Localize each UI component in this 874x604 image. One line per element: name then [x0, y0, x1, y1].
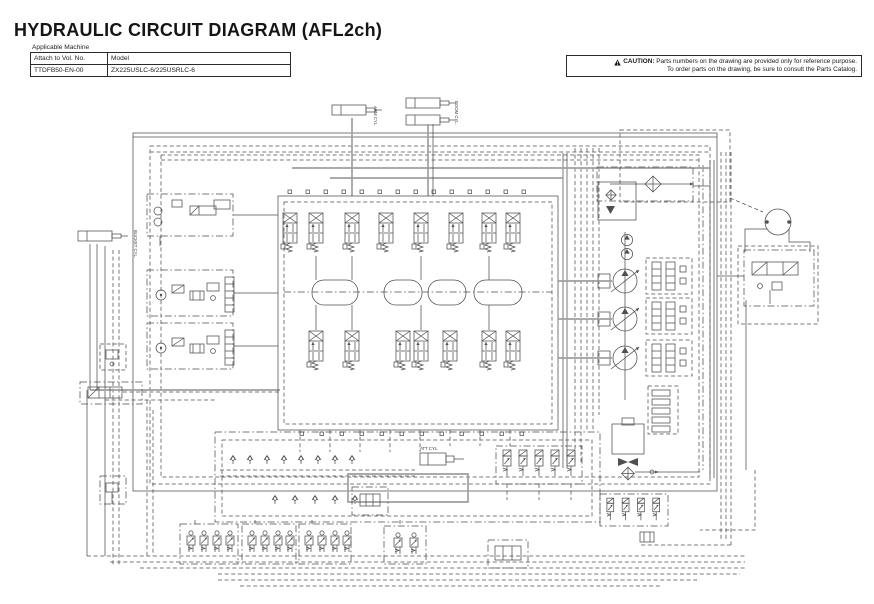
shuttle-valve-matrix: [215, 432, 600, 568]
pilot-solenoid-cluster: [600, 494, 668, 542]
boom-cylinder-label: BOOM CYL.: [454, 101, 459, 125]
page: HYDRAULIC CIRCUIT DIAGRAM (AFL2ch) Appli…: [0, 0, 874, 604]
pilot-pump: [621, 234, 632, 245]
suction-strainer-icon: [622, 467, 635, 480]
pump-regulators: [646, 258, 692, 434]
bucket-cylinder: BUCKET CYL.: [78, 230, 138, 390]
hydraulic-circuit-schematic: ARM CYL. BOOM CYL. BUCKET CYL.: [0, 0, 874, 604]
reservoir-unit: [612, 418, 700, 480]
attachment-cylinder-label: ATT CYL.: [420, 446, 438, 451]
oil-tank: [612, 424, 644, 454]
control-valve-bottom-ports: [300, 432, 524, 436]
travel-motor-valve-left: [147, 270, 278, 316]
attachment-cylinder: ATT CYL.: [420, 446, 464, 465]
gear-pump: [621, 248, 632, 259]
travel-motor-valve-right: [147, 323, 278, 369]
pilot-valve-cluster-4: [195, 520, 426, 564]
boom-cylinders: BOOM CYL.: [406, 98, 459, 196]
arm-cylinder: ARM CYL.: [332, 105, 382, 196]
pump-group: [558, 232, 639, 400]
return-filter-icon: [645, 176, 661, 192]
pilot-valve-cluster-3: [299, 524, 351, 564]
arm-cylinder-label: ARM CYL.: [373, 106, 378, 126]
pilot-valve-cluster-1: [180, 524, 238, 564]
pilot-valve-cluster-2: [242, 524, 296, 564]
control-valve-block: [278, 190, 558, 452]
solenoid-valve-manifold: [496, 446, 582, 500]
pilot-shutoff-unit: [147, 194, 278, 246]
bucket-cylinder-label: BUCKET CYL.: [133, 230, 138, 258]
cooling-fan-icon: [618, 458, 628, 466]
oil-cooler-filter-unit: [597, 130, 763, 220]
left-valve-assemblies: [80, 344, 280, 504]
swing-motor-unit: [717, 209, 818, 324]
bypass-filter-icon: [606, 190, 616, 200]
control-valve-top-ports: [288, 190, 526, 194]
